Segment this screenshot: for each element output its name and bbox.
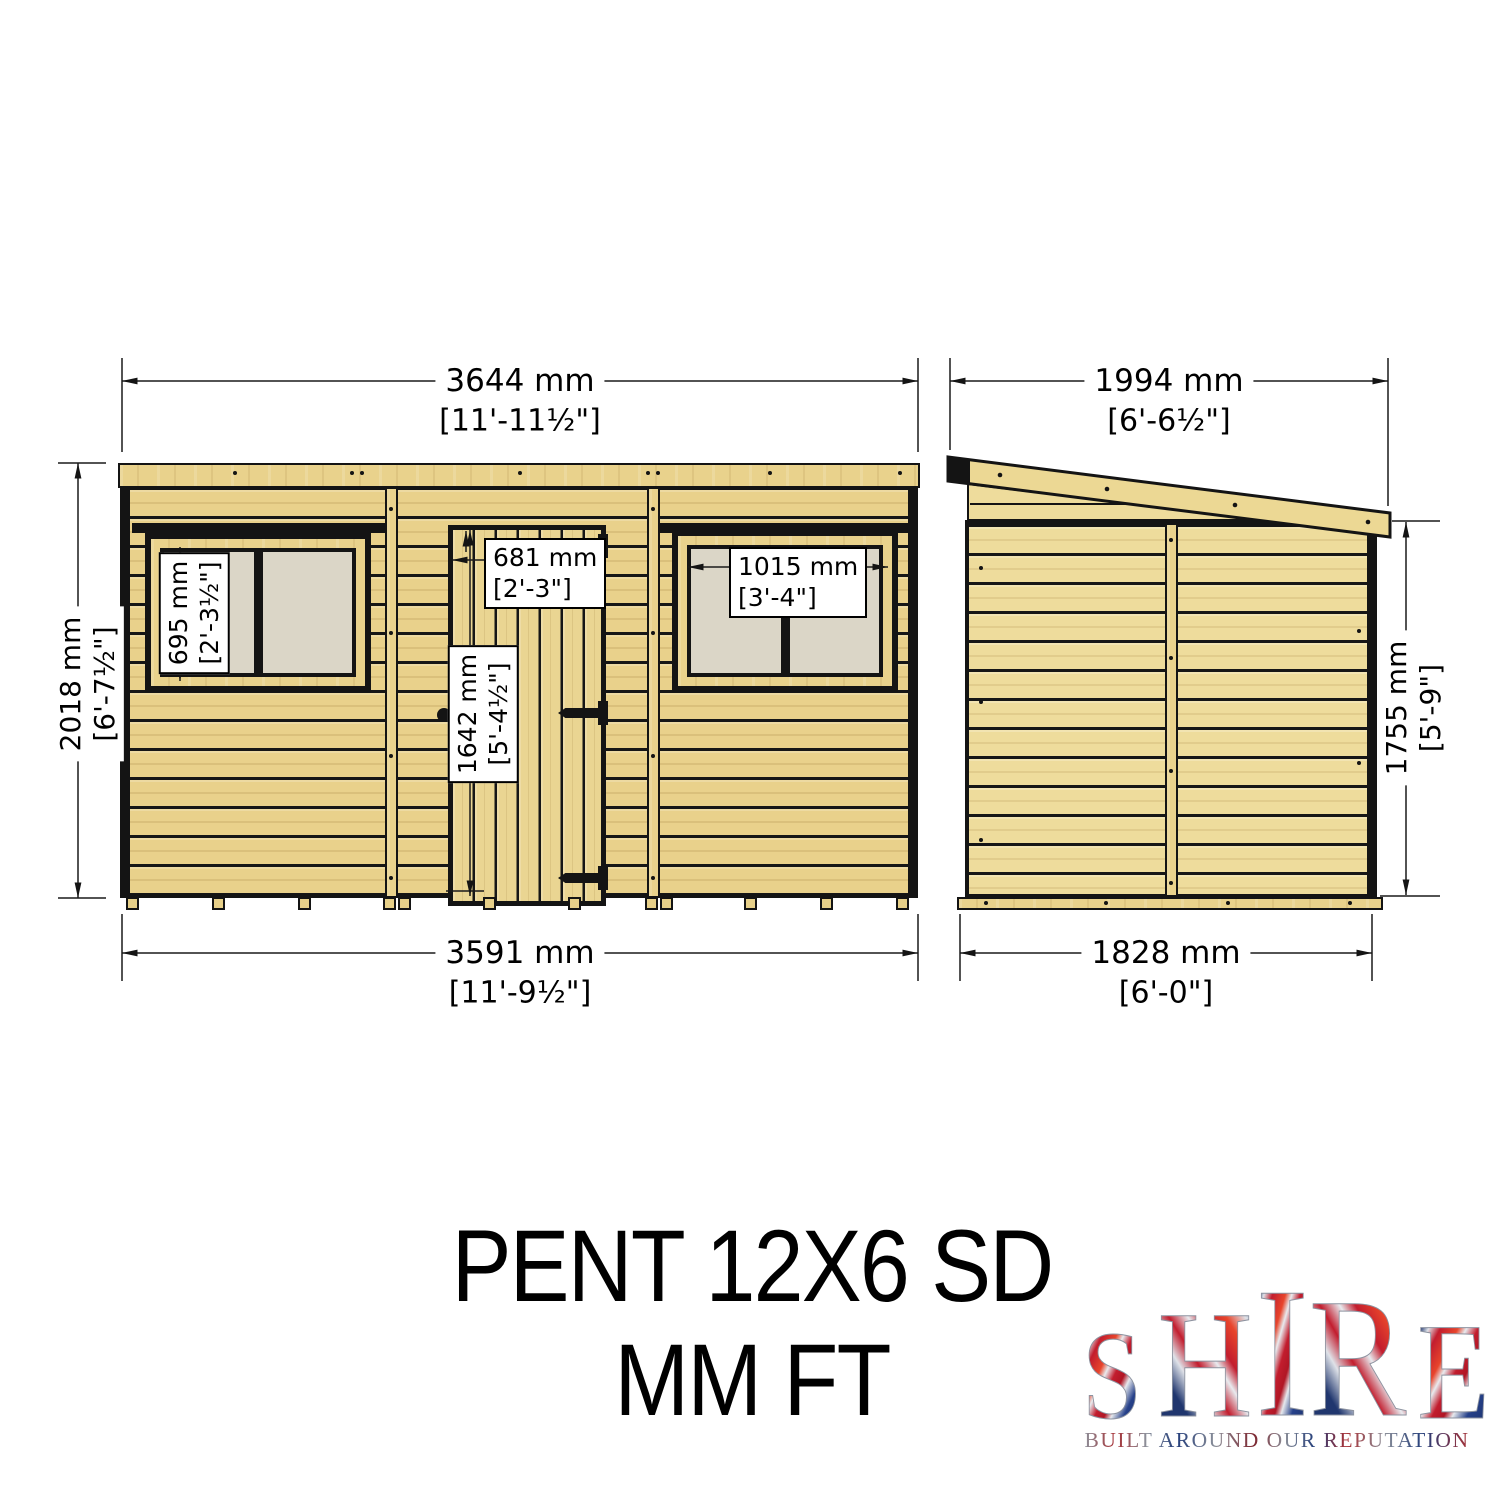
door-width-ftin: [2'-3"] [493,573,597,604]
right-window-width-ftin: [3'-4"] [738,582,858,613]
batten-left-nail-dots [389,507,393,511]
door-hinge-bottom-plate [598,866,608,890]
side-wall-batten [1165,523,1178,897]
left-window-height-ftin: [2'-3½"] [194,561,225,665]
left-window-latch-2 [330,529,352,537]
side-height-mm: 1755 mm [1380,641,1414,776]
door-height-ftin: [5'-4½"] [483,654,514,774]
front-foot [398,897,411,910]
logo-letter-r: R [1309,1265,1407,1453]
side-base-depth-dimension-ftin: [6'-0"] [1113,976,1219,1011]
front-roof-fascia [118,463,920,488]
side-wall-nail-dots [979,566,983,570]
side-floor-nail-dots [984,901,988,905]
side-floor-bearer [957,897,1383,910]
door-width-mm: 681 mm [493,542,597,573]
front-foot [212,897,225,910]
front-foot [483,897,496,910]
right-window-latch-1 [690,526,712,534]
left-window-height-mm: 695 mm [163,561,194,665]
drawing-title: PENT 12X6 SD [452,1208,1053,1325]
side-gable-infill [968,484,1262,520]
logo-letter-h: H [1158,1280,1253,1449]
wall-batten-left [385,487,398,898]
side-depth-dimension: 1994 mm [1084,363,1253,399]
front-foot [298,897,311,910]
shire-logo: S H I R E BUILT AROUND OUR REPUTATION [1075,1265,1485,1490]
left-window-mullion [254,548,263,677]
technical-drawing-page: 3644 mm [11'-11½"] 2018 mm [6'-7½"] 3591… [0,0,1500,1500]
side-roof-end-cap [948,457,970,484]
left-window-height-label: 695 mm [2'-3½"] [159,552,230,674]
side-base-depth-dimension: 1828 mm [1081,935,1250,971]
front-foot [383,897,396,910]
drawing-units: MM FT [614,1322,889,1439]
logo-letter-e: E [1417,1295,1485,1448]
front-foot [568,897,581,910]
door-hinge-middle-plate [598,701,608,725]
wall-batten-right [647,487,660,898]
fascia-nail-dots [233,471,237,475]
front-foot [820,897,833,910]
logo-letter-s: S [1082,1306,1142,1445]
front-width-dimension: 3644 mm [435,363,604,399]
side-depth-dimension-ftin: [6'-6½"] [1101,404,1237,439]
front-foot [645,897,658,910]
right-window-width-label: 1015 mm [3'-4"] [729,547,867,618]
front-foot [896,897,909,910]
front-foot [660,897,673,910]
door-height-label: 1642 mm [5'-4½"] [448,645,519,783]
door-height-mm: 1642 mm [452,654,483,774]
front-foot [126,897,139,910]
batten-right-nail-dots [651,507,655,511]
right-window-latch-2 [856,526,878,534]
front-height-ftin: [6'-7½"] [88,617,122,752]
front-height-mm: 2018 mm [54,617,88,752]
front-base-width-dimension: 3591 mm [435,935,604,971]
door-width-label: 681 mm [2'-3"] [484,538,606,609]
front-foot [744,897,757,910]
right-window-width-mm: 1015 mm [738,551,858,582]
front-height-dimension: 2018 mm [6'-7½"] [52,607,124,762]
logo-tagline: BUILT AROUND OUR REPUTATION [1085,1428,1470,1452]
front-width-dimension-ftin: [11'-11½"] [433,404,607,439]
side-height-dimension: 1755 mm [5'-9"] [1378,631,1450,786]
left-window-latch-1 [167,529,189,537]
front-base-width-dimension-ftin: [11'-9½"] [443,976,598,1011]
side-height-ftin: [5'-9"] [1414,641,1448,776]
